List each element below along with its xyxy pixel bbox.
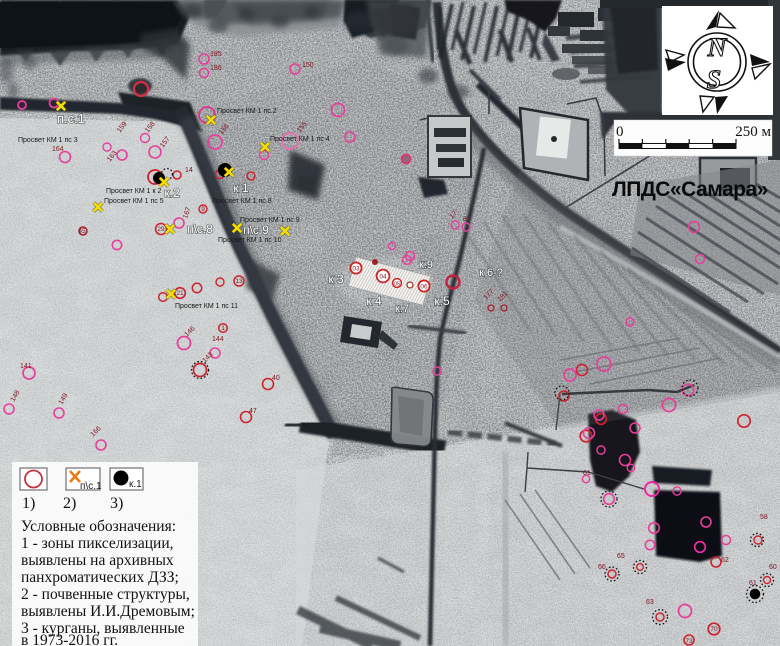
svg-text:к 1: к 1 bbox=[233, 181, 249, 195]
svg-text:60: 60 bbox=[769, 564, 777, 571]
svg-text:3): 3) bbox=[110, 495, 123, 512]
svg-text:к 4: к 4 bbox=[366, 294, 382, 308]
svg-text:141: 141 bbox=[20, 363, 32, 370]
svg-text:164: 164 bbox=[52, 146, 64, 153]
svg-text:150: 150 bbox=[302, 62, 314, 69]
svg-text:0: 0 bbox=[616, 124, 624, 140]
svg-text:Просвет КМ 1 пс 11: Просвет КМ 1 пс 11 bbox=[175, 303, 238, 310]
svg-text:к.5: к.5 bbox=[434, 294, 450, 308]
svg-text:21: 21 bbox=[176, 290, 184, 297]
svg-text:выявлены И.И.Дремовым;: выявлены И.И.Дремовым; bbox=[21, 603, 195, 620]
svg-text:S: S bbox=[707, 65, 721, 94]
svg-text:144: 144 bbox=[212, 336, 224, 343]
svg-text:Просвет КМ 1 пс 10: Просвет КМ 1 пс 10 bbox=[218, 237, 282, 244]
svg-text:2): 2) bbox=[63, 495, 76, 512]
svg-text:N: N bbox=[707, 33, 728, 62]
svg-text:06: 06 bbox=[420, 284, 428, 291]
svg-text:1 - зоны пикселизации,: 1 - зоны пикселизации, bbox=[21, 535, 174, 552]
svg-text:панхроматических ДЗЗ;: панхроматических ДЗЗ; bbox=[21, 569, 179, 586]
svg-text:Просвет КМ 1 пс.2: Просвет КМ 1 пс.2 bbox=[217, 108, 277, 115]
svg-text:п\с 9: п\с 9 bbox=[243, 223, 269, 237]
svg-text:186: 186 bbox=[210, 65, 222, 72]
svg-text:73: 73 bbox=[685, 638, 693, 645]
svg-text:70: 70 bbox=[710, 626, 718, 633]
svg-text:1: 1 bbox=[221, 325, 225, 332]
svg-text:47: 47 bbox=[249, 408, 257, 415]
svg-text:к 6-?: к 6-? bbox=[479, 267, 503, 279]
svg-text:Условные обозначения:: Условные обозначения: bbox=[21, 518, 176, 535]
svg-text:63: 63 bbox=[646, 599, 654, 606]
svg-text:п.с.1: п.с.1 bbox=[57, 111, 85, 126]
svg-text:к.7: к.7 bbox=[395, 303, 409, 315]
svg-text:1): 1) bbox=[22, 495, 35, 512]
svg-text:ЛПДС«Самара»: ЛПДС«Самара» bbox=[612, 178, 768, 201]
svg-text:Просвет КМ 1 пс 3: Просвет КМ 1 пс 3 bbox=[18, 137, 78, 144]
svg-text:Просвет КМ 1 пс 4: Просвет КМ 1 пс 4 bbox=[270, 136, 330, 143]
svg-text:Просвет КМ 1 пс 8: Просвет КМ 1 пс 8 bbox=[212, 198, 272, 205]
svg-text:40: 40 bbox=[272, 375, 280, 382]
svg-text:к.1: к.1 bbox=[129, 479, 142, 490]
svg-text:Просвет КМ 1 пс 5: Просвет КМ 1 пс 5 bbox=[104, 198, 164, 205]
svg-text:61: 61 bbox=[583, 470, 591, 477]
svg-text:выявлены на архивных: выявлены на архивных bbox=[21, 552, 174, 569]
svg-text:к.9: к.9 bbox=[419, 259, 433, 271]
svg-text:29: 29 bbox=[157, 226, 165, 233]
svg-text:к.2: к.2 bbox=[164, 186, 180, 200]
svg-text:Просвет КМ 1 к 2: Просвет КМ 1 к 2 bbox=[106, 188, 161, 195]
svg-text:58: 58 bbox=[760, 514, 768, 521]
svg-text:к 3: к 3 bbox=[328, 272, 344, 286]
svg-text:03: 03 bbox=[352, 266, 360, 273]
svg-text:65: 65 bbox=[617, 553, 625, 560]
svg-text:14: 14 bbox=[185, 167, 193, 174]
svg-text:61: 61 bbox=[749, 580, 757, 587]
svg-text:250 м: 250 м bbox=[735, 124, 771, 140]
svg-text:05: 05 bbox=[394, 282, 400, 288]
svg-text:62: 62 bbox=[721, 557, 729, 564]
svg-text:в 1973-2016 гг.: в 1973-2016 гг. bbox=[21, 632, 118, 646]
svg-text:185: 185 bbox=[210, 51, 222, 58]
svg-text:9: 9 bbox=[201, 206, 205, 213]
svg-text:2 - почвенные структуры,: 2 - почвенные структуры, bbox=[21, 586, 190, 603]
svg-text:6: 6 bbox=[630, 459, 634, 466]
svg-text:8: 8 bbox=[463, 216, 467, 223]
svg-text:Просвет КМ 1 пс 9: Просвет КМ 1 пс 9 bbox=[240, 217, 300, 224]
svg-text:45: 45 bbox=[78, 228, 86, 235]
svg-text:13: 13 bbox=[235, 278, 243, 285]
svg-text:п\с.8: п\с.8 bbox=[187, 222, 213, 236]
svg-text:п\с.1: п\с.1 bbox=[80, 481, 102, 492]
svg-text:66: 66 bbox=[598, 564, 606, 571]
svg-text:04: 04 bbox=[379, 274, 387, 281]
